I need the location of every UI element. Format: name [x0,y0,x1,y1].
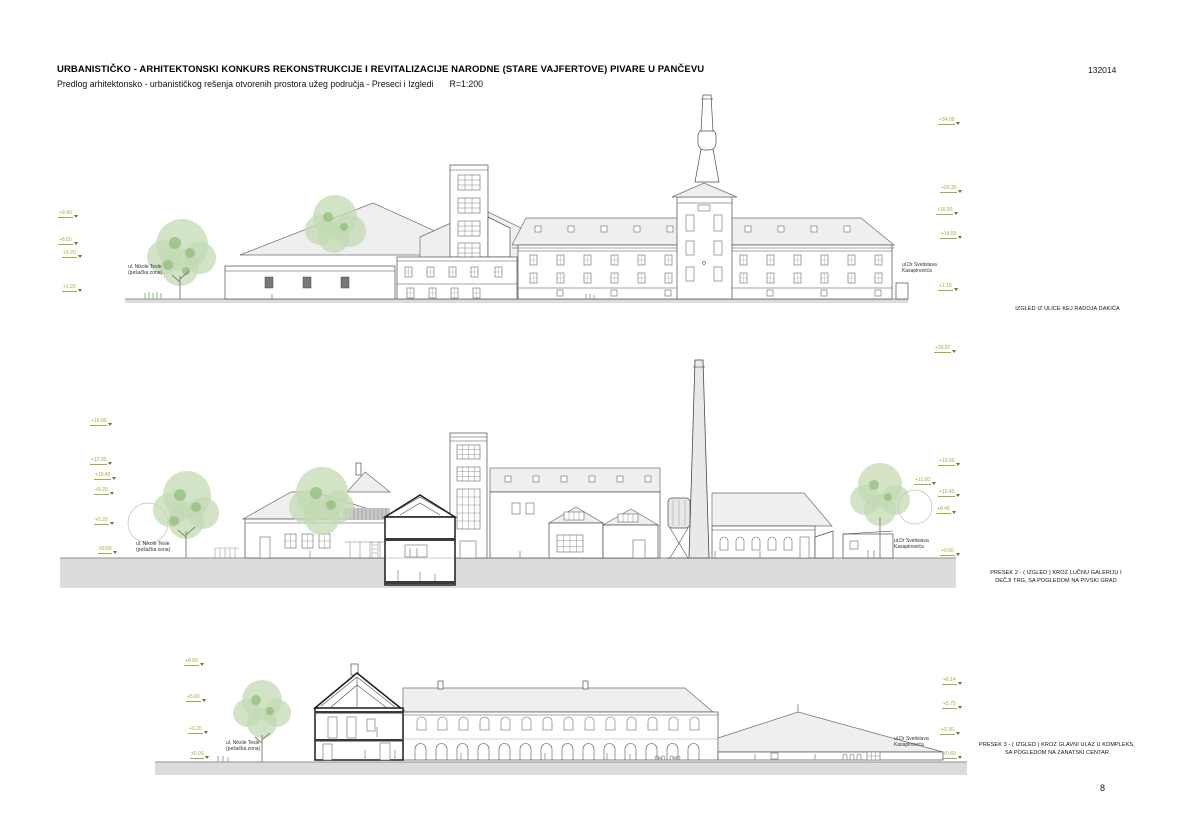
street-label-right-2: ul.Dr SvetislavaKasapinovića [894,538,929,551]
low-building [225,266,395,299]
level-triangle-icon [958,682,962,685]
entry-code: 132014 [1088,65,1116,75]
level-triangle-icon [205,756,209,759]
level-marker: +0.60 [940,549,960,556]
level-triangle-icon [110,522,114,525]
level-marker: ±0.00 [98,547,117,554]
level-triangle-icon [204,731,208,734]
level-triangle-icon [932,482,936,485]
level-marker: +16.00 [90,419,112,426]
level-marker: +11.60 [914,478,936,485]
level-triangle-icon [958,706,962,709]
level-triangle-icon [74,242,78,245]
level-triangle-icon [112,477,116,480]
level-triangle-icon [108,462,112,465]
elevation-1-drawing [120,85,910,307]
level-triangle-icon [200,663,204,666]
level-marker: +8.60 [184,659,204,666]
level-marker: +5.60 [186,695,206,702]
level-triangle-icon [958,190,962,193]
caption-section-3: PRESEK 3 - ( IZGLED ) KROZ GLAVNI ULAZ U… [968,742,1146,757]
caption-elevation-1: IZGLED IZ ULICE KEJ RADOJA DAKIĆA [1000,306,1135,314]
mid-building [397,257,517,299]
level-triangle-icon [113,551,117,554]
right-annex [843,531,893,558]
level-marker: +14.50 [940,232,962,239]
level-marker: +1.10 [938,284,958,291]
level-triangle-icon [954,212,958,215]
street-label-left-3: ul. Nikole Tesle(pešačka zona) [226,740,260,753]
level-triangle-icon [958,756,962,759]
level-marker: +5.20 [94,518,114,525]
ground [125,299,908,303]
ground-section [60,558,956,588]
chimney [695,95,719,182]
level-triangle-icon [958,236,962,239]
level-triangle-icon [956,463,960,466]
page-title: URBANISTIČKO - ARHITEKTONSKI KONKURS REK… [57,64,704,75]
tall-chimney [689,360,709,558]
level-marker: +13.00 [938,459,960,466]
level-marker: +12.00 [90,458,112,465]
level-marker: +10.40 [94,473,116,480]
level-triangle-icon [78,289,82,292]
level-marker: +9.20 [94,488,114,495]
level-marker: +3.20 [188,727,208,734]
level-marker: +5.20 [62,251,82,258]
level-triangle-icon [956,122,960,125]
level-triangle-icon [202,699,206,702]
level-triangle-icon [952,511,956,514]
section-cut-building [315,664,403,760]
page-number: 8 [1100,783,1105,793]
long-building [403,681,718,760]
level-marker: +9.40 [58,211,78,218]
level-triangle-icon [110,492,114,495]
street-label-left-1: ul. Nikole Tesle(pešačka zona) [128,264,162,277]
right-garden-wall [896,283,908,299]
level-marker: +1.20 [62,285,82,292]
level-marker: ±0.00 [190,752,209,759]
ground-section [155,762,967,775]
street-label-right-3: ul.Dr SvetislavaKasapinovića [894,736,929,749]
level-triangle-icon [74,215,78,218]
long-building [712,493,833,558]
level-triangle-icon [952,350,956,353]
level-marker: +5.75 [942,702,962,709]
level-triangle-icon [956,732,960,735]
tree [145,219,216,299]
level-marker: +30.87 [934,346,956,353]
clock-tower [450,165,510,258]
level-marker: +8.14 [942,678,962,685]
section-3-drawing [155,655,985,780]
caption-section-2: PRESEK 2 - ( IZGLED ) KROZ LUČNU GALERIJ… [972,570,1140,585]
level-marker: +3.30 [940,728,960,735]
section-2-drawing [60,345,960,595]
fence [215,548,239,558]
level-triangle-icon [108,423,112,426]
street-label-left-2: ul. Nikole Tesle(pešačka zona) [136,541,170,554]
level-marker: +16.50 [936,208,958,215]
central-tower [672,183,737,299]
drawing-sheet: URBANISTIČKO - ARHITEKTONSKI KONKURS REK… [0,0,1200,840]
level-triangle-icon [956,553,960,556]
water-tower [667,498,691,558]
level-marker: +34.09 [938,118,960,125]
level-marker: +6.50 [58,238,78,245]
level-marker: +10.40 [938,490,960,497]
level-marker: +8.40 [936,507,956,514]
street-label-right-1: ul.Dr SvetislavaKasapinovića [902,262,937,275]
right-wing [718,704,943,760]
level-marker: +20.30 [940,186,962,193]
level-triangle-icon [78,255,82,258]
level-triangle-icon [954,288,958,291]
level-marker: +0.60 [942,752,962,759]
level-triangle-icon [956,494,960,497]
